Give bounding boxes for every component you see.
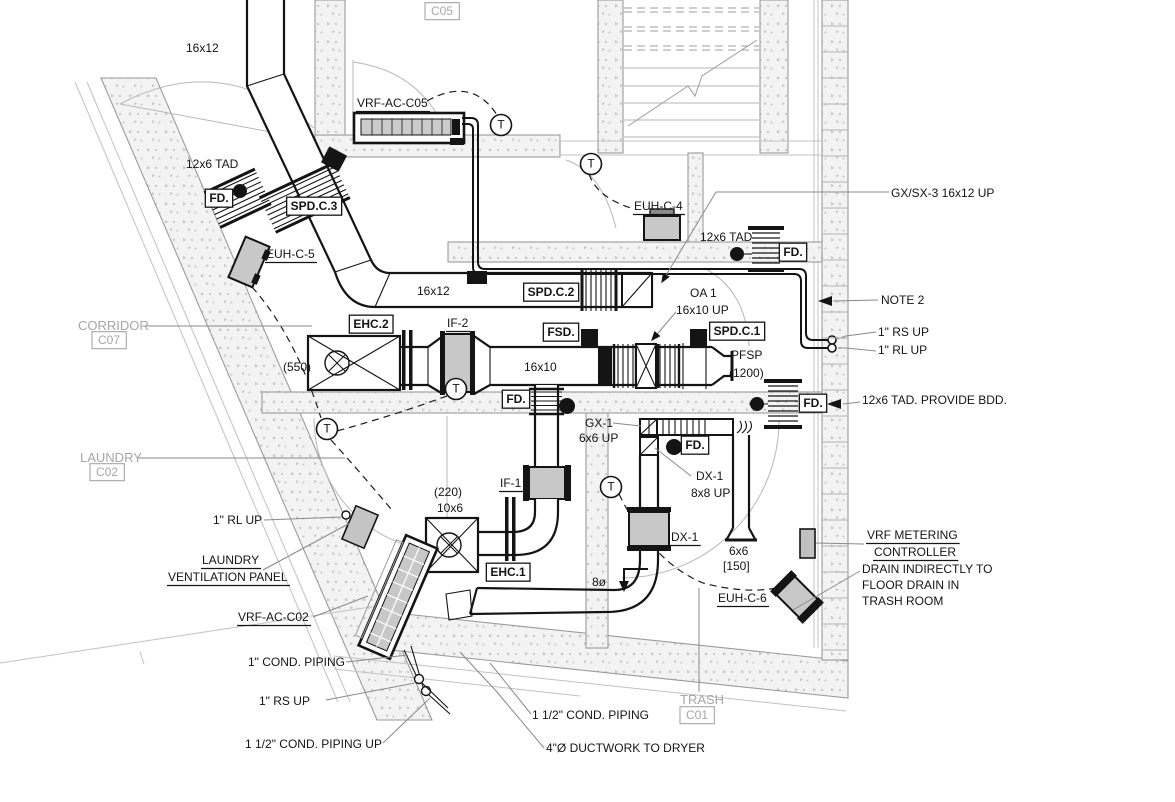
- tad-12x6-right: 12x6 TAD: [700, 230, 753, 244]
- pfsp: PFSP: [731, 348, 762, 362]
- main-duct-16x10: [308, 329, 732, 395]
- fsd: FSD.: [543, 323, 578, 341]
- duct-16x12-mid: 16x12: [417, 284, 450, 298]
- svg-text:CORRIDOR: CORRIDOR: [78, 318, 149, 333]
- svg-text:T: T: [497, 118, 505, 132]
- damper-dot: [233, 184, 247, 198]
- cond-1in: 1" COND. PIPING: [248, 655, 345, 669]
- spd-c1-actuator: [690, 329, 707, 347]
- vrf-ac-c05-unit: [354, 113, 464, 145]
- duct-16x10: 16x10: [524, 360, 557, 374]
- fd-trash: FD.: [681, 436, 708, 454]
- svg-text:10x6: 10x6: [437, 501, 463, 515]
- svg-text:SPD.C.2: SPD.C.2: [528, 285, 575, 299]
- fd-mid: FD.: [502, 390, 529, 408]
- thermostat-symbol: T: [601, 477, 622, 498]
- room-laundry: LAUNDRY: [80, 450, 142, 465]
- size-150: [150]: [723, 559, 750, 573]
- svg-text:EUH-C-4: EUH-C-4: [634, 199, 683, 213]
- laundry-panel-1: LAUNDRY: [201, 553, 261, 569]
- svg-text:T: T: [452, 382, 460, 396]
- svg-text:C02: C02: [96, 465, 118, 479]
- svg-text:4"Ø DUCTWORK TO DRYER: 4"Ø DUCTWORK TO DRYER: [546, 741, 705, 755]
- svg-text:PFSP: PFSP: [731, 348, 762, 362]
- right-exterior-wall: [822, 0, 848, 660]
- rl-riser-circle: [342, 511, 350, 519]
- svg-text:16x10 UP: 16x10 UP: [676, 303, 729, 317]
- vrf-metering-controller-unit: [800, 529, 815, 558]
- dx-1: DX-1: [670, 530, 701, 546]
- gx-1-size: 6x6 UP: [579, 431, 618, 445]
- svg-text:VENTILATION PANEL: VENTILATION PANEL: [168, 570, 288, 584]
- svg-text:1" RS UP: 1" RS UP: [259, 694, 310, 708]
- cfm-220: (220): [434, 485, 462, 499]
- svg-text:LAUNDRY: LAUNDRY: [202, 553, 259, 567]
- svg-text:FSD.: FSD.: [547, 325, 574, 339]
- fd-upper-right: FD.: [779, 243, 806, 261]
- if-2: IF-2: [446, 316, 471, 332]
- svg-text:1 1/2" COND. PIPING UP: 1 1/2" COND. PIPING UP: [245, 737, 382, 751]
- svg-text:1" RL UP: 1" RL UP: [878, 343, 927, 357]
- svg-text:FLOOR DRAIN IN: FLOOR DRAIN IN: [862, 578, 959, 592]
- rs-up-right: 1" RS UP: [878, 325, 929, 339]
- room-tag-c01: C01: [680, 707, 714, 724]
- fsd-actuator: [581, 329, 598, 347]
- euh-c4: EUH-C-4: [633, 199, 685, 215]
- thermostat-symbol: T: [581, 154, 602, 175]
- room-tag-c07: C07: [92, 332, 126, 349]
- svg-text:6x6 UP: 6x6 UP: [579, 431, 618, 445]
- dryer-duct: 4"Ø DUCTWORK TO DRYER: [546, 741, 705, 755]
- laundry-panel-2: VENTILATION PANEL: [167, 570, 290, 586]
- svg-text:8ø: 8ø: [592, 575, 607, 589]
- svg-text:VRF-AC-C02: VRF-AC-C02: [238, 610, 309, 624]
- room-trash: TRASH: [680, 692, 724, 707]
- ehc-1: EHC.1: [486, 563, 530, 581]
- svg-text:SPD.C.3: SPD.C.3: [291, 199, 338, 213]
- stair: [624, 8, 759, 137]
- svg-text:IF-2: IF-2: [447, 316, 469, 330]
- svg-text:6x6: 6x6: [729, 544, 749, 558]
- rl-up-right: 1" RL UP: [878, 343, 927, 357]
- svg-text:C05: C05: [431, 4, 453, 18]
- svg-text:1" COND. PIPING: 1" COND. PIPING: [248, 655, 345, 669]
- svg-text:NOTE 2: NOTE 2: [881, 293, 925, 307]
- if1-fan: [529, 467, 565, 499]
- svg-text:12x6 TAD: 12x6 TAD: [700, 230, 753, 244]
- svg-text:(550): (550): [283, 360, 311, 374]
- svg-text:1 1/2" COND. PIPING: 1 1/2" COND. PIPING: [532, 708, 649, 722]
- rs-up-bottom: 1" RS UP: [259, 694, 310, 708]
- vrf-ac-c02: VRF-AC-C02: [237, 610, 311, 626]
- cond-1half-up: 1 1/2" COND. PIPING UP: [245, 737, 382, 751]
- gx-1: GX-1: [585, 416, 613, 430]
- vrf-ac-c05: VRF-AC-C05: [356, 96, 430, 112]
- svg-text:IF-1: IF-1: [500, 476, 522, 490]
- euh-c4-unit: [644, 209, 680, 240]
- svg-text:1" RS UP: 1" RS UP: [878, 325, 929, 339]
- rl-up-laundry: 1" RL UP: [213, 513, 262, 527]
- tad-12x6-left: 12x6 TAD: [186, 157, 239, 171]
- duct-16x12-top: 16x12: [186, 41, 219, 55]
- svg-text:12x6 TAD: 12x6 TAD: [186, 157, 239, 171]
- floor-plan-canvas: C0516x12VRF-AC-C0512x6 TADFD.SPD.C.3EUH-…: [0, 0, 1175, 802]
- spd-c1: SPD.C.1: [710, 322, 765, 340]
- bottom-exterior-wall: [380, 612, 848, 698]
- svg-text:T: T: [607, 480, 615, 494]
- svg-text:T: T: [323, 422, 331, 436]
- svg-text:TRASH: TRASH: [680, 692, 724, 707]
- size-6x6: 6x6: [729, 544, 749, 558]
- svg-text:EHC.1: EHC.1: [490, 565, 526, 579]
- fd-right-wall: FD.: [799, 394, 826, 412]
- svg-text:FD.: FD.: [783, 245, 802, 259]
- svg-text:FD.: FD.: [209, 191, 228, 205]
- cfm-550: (550): [283, 360, 311, 374]
- svg-text:DX-1: DX-1: [671, 530, 699, 544]
- svg-text:(220): (220): [434, 485, 462, 499]
- if-1: IF-1: [499, 476, 524, 492]
- size-10x6: 10x6: [437, 501, 463, 515]
- tad-bdd: 12x6 TAD. PROVIDE BDD.: [862, 393, 1007, 407]
- svg-text:(1200): (1200): [729, 366, 764, 380]
- svg-text:EUH-C-5: EUH-C-5: [266, 247, 315, 261]
- euh-c6: EUH-C-6: [717, 591, 769, 607]
- svg-text:EHC.2: EHC.2: [353, 317, 389, 331]
- svg-text:C07: C07: [98, 333, 120, 347]
- svg-text:GX/SX-3 16x12 UP: GX/SX-3 16x12 UP: [891, 186, 994, 200]
- svg-text:TRASH ROOM: TRASH ROOM: [862, 594, 943, 608]
- svg-text:FD.: FD.: [685, 438, 704, 452]
- svg-text:T: T: [587, 157, 595, 171]
- svg-text:VRF METERING: VRF METERING: [867, 528, 958, 542]
- note-2: NOTE 2: [881, 293, 925, 307]
- damper-dot: [559, 398, 575, 414]
- spd-c3: SPD.C.3: [287, 197, 342, 215]
- fsd-damper: [598, 347, 612, 385]
- svg-text:CONTROLLER: CONTROLLER: [874, 545, 956, 559]
- svg-text:FD.: FD.: [506, 392, 525, 406]
- drain-3: TRASH ROOM: [862, 594, 943, 608]
- oa-1-size: 16x10 UP: [676, 303, 729, 317]
- dx1-fan: [629, 512, 669, 546]
- svg-text:FD.: FD.: [803, 396, 822, 410]
- stair-break-line: [628, 40, 757, 126]
- euh-c5: EUH-C-5: [265, 247, 317, 263]
- svg-text:DRAIN INDIRECTLY TO: DRAIN INDIRECTLY TO: [862, 562, 992, 576]
- svg-text:DX-1: DX-1: [696, 469, 724, 483]
- thermostat-symbol: T: [491, 115, 512, 136]
- thermostat-symbol: T: [446, 379, 467, 400]
- svg-text:EUH-C-6: EUH-C-6: [718, 591, 767, 605]
- svg-text:12x6 TAD. PROVIDE BDD.: 12x6 TAD. PROVIDE BDD.: [862, 393, 1007, 407]
- cond-1half: 1 1/2" COND. PIPING: [532, 708, 649, 722]
- dx-1-riser-size: 8x8 UP: [691, 486, 730, 500]
- drain-2: FLOOR DRAIN IN: [862, 578, 959, 592]
- vrf-metering-2: CONTROLLER: [873, 545, 958, 561]
- damper-dot: [666, 439, 682, 455]
- thermostat-symbol: T: [317, 419, 338, 440]
- svg-text:8x8 UP: 8x8 UP: [691, 486, 730, 500]
- size-8dia: 8ø: [592, 575, 607, 589]
- spd-c2: SPD.C.2: [524, 283, 579, 301]
- damper-dot: [730, 247, 744, 261]
- room-corridor: CORRIDOR: [78, 318, 149, 333]
- dx-1-riser: DX-1: [696, 469, 724, 483]
- room-tag-c05: C05: [425, 3, 459, 20]
- svg-text:VRF-AC-C05: VRF-AC-C05: [357, 96, 428, 110]
- svg-text:SPD.C.1: SPD.C.1: [714, 324, 761, 338]
- gx-sx-3: GX/SX-3 16x12 UP: [891, 186, 994, 200]
- room-tag-c02: C02: [90, 464, 124, 481]
- pfsp-cfm: (1200): [729, 366, 764, 380]
- svg-text:1" RL UP: 1" RL UP: [213, 513, 262, 527]
- vrf-metering-1: VRF METERING: [866, 528, 960, 544]
- drain-1: DRAIN INDIRECTLY TO: [862, 562, 992, 576]
- svg-text:16x12: 16x12: [186, 41, 219, 55]
- svg-text:LAUNDRY: LAUNDRY: [80, 450, 142, 465]
- svg-text:16x10: 16x10: [524, 360, 557, 374]
- svg-text:C01: C01: [686, 708, 708, 722]
- svg-text:16x12: 16x12: [417, 284, 450, 298]
- svg-text:OA 1: OA 1: [690, 286, 717, 300]
- svg-text:[150]: [150]: [723, 559, 750, 573]
- fd-upper-left: FD.: [205, 189, 232, 207]
- oa-1: OA 1: [690, 286, 717, 300]
- ehc-2: EHC.2: [349, 315, 393, 333]
- svg-text:GX-1: GX-1: [585, 416, 613, 430]
